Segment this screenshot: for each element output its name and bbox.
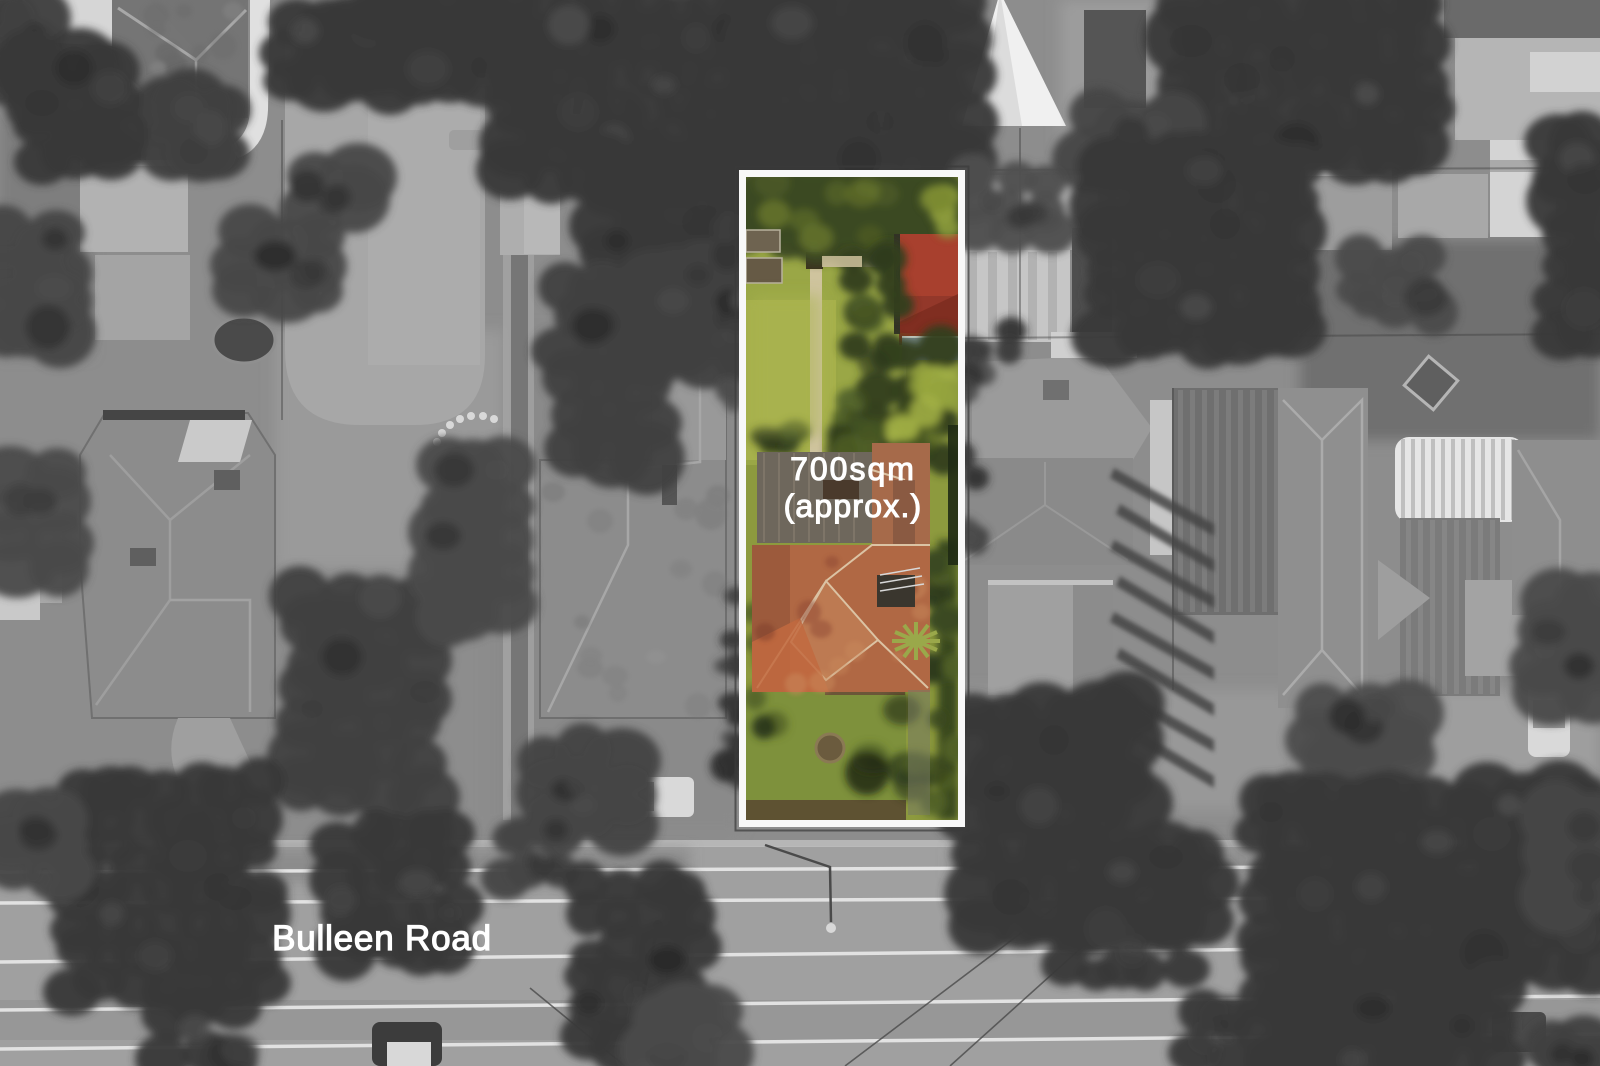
svg-text:700sqm: 700sqm — [790, 451, 916, 487]
svg-text:Bulleen Road: Bulleen Road — [272, 919, 492, 958]
svg-text:(approx.): (approx.) — [784, 488, 923, 524]
